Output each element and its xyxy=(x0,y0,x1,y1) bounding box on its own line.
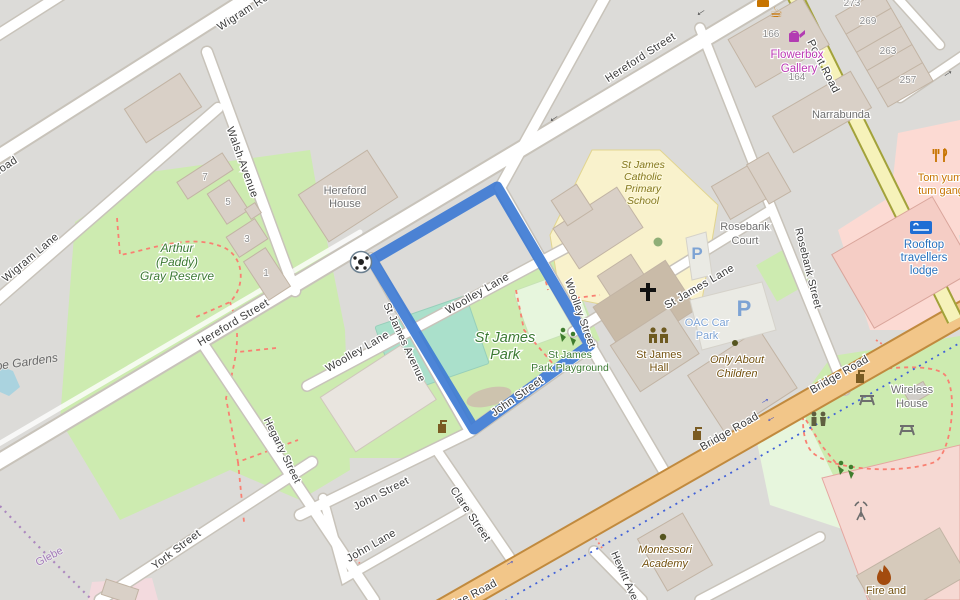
label-oac-1: OAC Car xyxy=(685,317,730,329)
label-only-about-children-2: Children xyxy=(717,368,758,380)
housenumber-164: 164 xyxy=(789,72,806,83)
label-school-1: St James xyxy=(621,159,666,171)
label-playground-2: Park Playground xyxy=(531,362,609,374)
housenumber-1: 1 xyxy=(263,268,269,279)
label-school-4: School xyxy=(627,195,660,207)
label-hereford-house-2: House xyxy=(329,198,361,210)
label-narrabunda: Narrabunda xyxy=(812,109,871,121)
label-fire-station: Fire and xyxy=(866,585,906,597)
label-school-2: Catholic xyxy=(624,171,663,183)
housenumber-7: 7 xyxy=(202,172,208,183)
housenumber-263: 263 xyxy=(880,46,897,57)
label-reserve-1: Arthur xyxy=(160,241,195,255)
label-hereford-house-1: Hereford xyxy=(324,185,367,197)
housenumber-166: 166 xyxy=(763,29,780,40)
label-wireless-house-1: Wireless xyxy=(891,384,934,396)
map-svg: ← ← → → → ← ☕ P P xyxy=(0,0,960,600)
housenumber-273: 273 xyxy=(844,0,861,9)
label-rooftop-2: travellers xyxy=(901,252,948,264)
parking-icon-north: P xyxy=(691,244,702,263)
label-only-about-children-1: Only About xyxy=(710,354,765,366)
label-wireless-house-2: House xyxy=(896,398,928,410)
housenumber-5: 5 xyxy=(225,197,231,208)
soccer-marker-icon[interactable] xyxy=(351,252,372,273)
label-st-james-hall-2: Hall xyxy=(650,362,669,374)
label-oac-2: Park xyxy=(696,330,719,342)
label-reserve-3: Gray Reserve xyxy=(140,269,214,283)
cafe-icon: ☕ xyxy=(769,4,782,21)
label-rooftop-3: lodge xyxy=(910,265,938,277)
label-tom-yum-2: tum gang xyxy=(918,185,960,197)
label-rooftop-1: Rooftop xyxy=(904,239,944,251)
label-playground-1: St James xyxy=(548,349,592,361)
bed-icon xyxy=(910,221,932,234)
label-st-james-park-2: Park xyxy=(490,347,521,363)
map-canvas[interactable]: ← ← → → → ← ☕ P P xyxy=(0,0,960,600)
label-rosebank-court-1: Rosebank xyxy=(720,221,770,233)
label-rosebank-court-2: Court xyxy=(732,235,759,247)
label-tom-yum-1: Tom yum xyxy=(918,172,960,184)
label-reserve-2: (Paddy) xyxy=(156,255,198,269)
housenumber-269: 269 xyxy=(860,16,877,27)
label-montessori-1: Montessori xyxy=(638,544,692,556)
label-school-3: Primary xyxy=(625,183,662,195)
label-montessori-2: Academy xyxy=(641,558,689,570)
parking-icon-oac: P xyxy=(737,296,752,321)
housenumber-257: 257 xyxy=(900,75,917,86)
label-st-james-hall-1: St James xyxy=(636,349,682,361)
shop-icon xyxy=(757,0,769,7)
node-dot-montessori xyxy=(660,534,666,540)
label-st-james-park-1: St James xyxy=(475,330,535,346)
housenumber-3: 3 xyxy=(244,234,250,245)
tree-icon xyxy=(654,238,663,247)
node-dot-oac xyxy=(732,340,738,346)
label-flowerbox-1: Flowerbox xyxy=(770,49,823,61)
